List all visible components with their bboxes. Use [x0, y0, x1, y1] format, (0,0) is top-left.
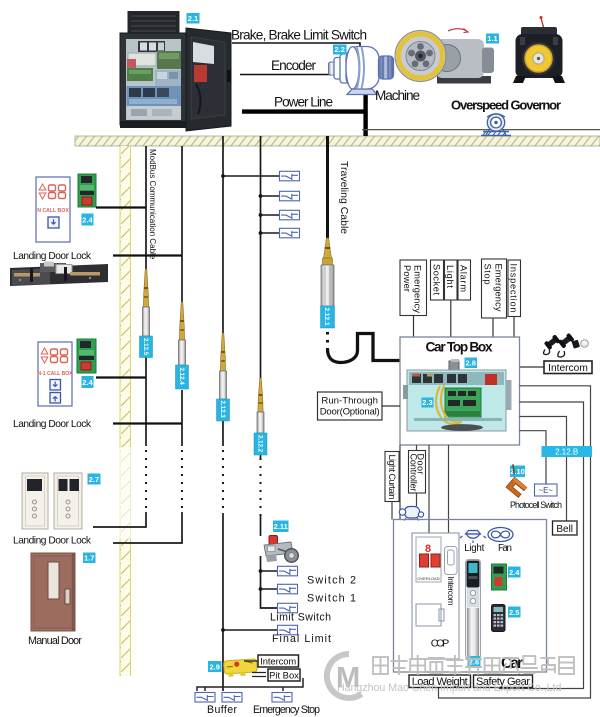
svg-text:2.12.2: 2.12.2 [256, 435, 263, 453]
svg-text:Door(Optional): Door(Optional) [320, 407, 380, 418]
svg-text:2.4: 2.4 [82, 378, 93, 387]
svg-text:Switch 1: Switch 1 [307, 593, 356, 605]
svg-text:2.5: 2.5 [509, 608, 519, 617]
svg-text:Power Line: Power Line [274, 95, 333, 110]
svg-text:Light: Light [445, 265, 455, 288]
svg-text:2.4: 2.4 [509, 568, 520, 577]
svg-text:Traveling Cable: Traveling Cable [338, 161, 350, 234]
svg-text:Manual Door: Manual Door [28, 635, 82, 647]
svg-text:Emergency Stop: Emergency Stop [253, 704, 320, 716]
svg-text:Car Top Box: Car Top Box [426, 340, 493, 355]
svg-text:2.2: 2.2 [334, 45, 344, 54]
svg-text:2.12.5: 2.12.5 [142, 338, 149, 356]
svg-text:2.11: 2.11 [274, 522, 288, 531]
svg-text:Socket: Socket [432, 264, 442, 295]
svg-text:Hangzhou Mao Chen Import and E: Hangzhou Mao Chen Import and Export Co.,… [337, 682, 561, 694]
svg-text:Buffer: Buffer [207, 704, 237, 716]
svg-text:Limit Switch: Limit Switch [270, 612, 331, 624]
svg-text:OVERLOAD: OVERLOAD [417, 576, 439, 581]
svg-text:2.12.B: 2.12.B [555, 448, 578, 457]
svg-text:Final Limit: Final Limit [272, 633, 331, 645]
svg-text:N CALL BOX: N CALL BOX [37, 208, 69, 214]
svg-text:Landing Door Lock: Landing Door Lock [13, 419, 92, 430]
svg-text:COP: COP [431, 638, 450, 650]
svg-text:Bell: Bell [556, 524, 573, 535]
svg-text:Encoder: Encoder [271, 58, 316, 73]
svg-text:Light Curtain: Light Curtain [387, 455, 397, 500]
svg-text:Machine: Machine [375, 88, 420, 103]
svg-text:Overspeed Governor: Overspeed Governor [451, 98, 561, 113]
svg-text:Photocell Switch: Photocell Switch [510, 500, 562, 510]
svg-text:Run-Through: Run-Through [321, 396, 378, 407]
svg-text:2.7: 2.7 [89, 475, 99, 484]
svg-text:Controller: Controller [409, 454, 419, 492]
svg-text:2.4: 2.4 [82, 216, 93, 225]
svg-text:2.9: 2.9 [209, 663, 219, 672]
svg-text:1.7: 1.7 [84, 554, 94, 563]
svg-text:Intercom: Intercom [260, 656, 296, 667]
svg-text:2.8: 2.8 [465, 359, 475, 368]
svg-text:N-1 CALL BOX: N-1 CALL BOX [38, 371, 74, 377]
svg-text:Landing Door Lock: Landing Door Lock [13, 251, 92, 262]
svg-text:2.12.3: 2.12.3 [219, 401, 226, 419]
svg-text:2.12.4: 2.12.4 [178, 368, 185, 386]
svg-text:Pit Box: Pit Box [269, 670, 299, 681]
svg-text:Brake, Brake Limit Switch: Brake, Brake Limit Switch [231, 28, 367, 43]
svg-text:ModBus Communication Cable: ModBus Communication Cable [148, 149, 157, 260]
svg-text:Stop: Stop [482, 264, 492, 285]
svg-text:Emergency: Emergency [493, 264, 503, 312]
svg-text:~E~: ~E~ [539, 486, 554, 495]
svg-text:8: 8 [425, 543, 431, 555]
svg-text:2.3: 2.3 [422, 398, 432, 407]
svg-text:Intercom: Intercom [446, 577, 456, 606]
svg-text:Intercom: Intercom [548, 363, 588, 374]
svg-text:2.1: 2.1 [188, 14, 198, 23]
svg-text:Landing Door Lock: Landing Door Lock [13, 536, 92, 547]
svg-text:Light: Light [464, 543, 484, 554]
svg-text:1.1: 1.1 [487, 34, 497, 43]
svg-text:2.10: 2.10 [510, 467, 525, 476]
svg-text:Power: Power [402, 265, 412, 292]
svg-text:2.12.1: 2.12.1 [323, 308, 330, 326]
svg-text:Inspection: Inspection [509, 264, 519, 313]
svg-text:Fan: Fan [498, 543, 512, 554]
svg-text:Switch 2: Switch 2 [307, 575, 356, 587]
svg-text:Emergency: Emergency [412, 265, 422, 313]
svg-text:Alarm: Alarm [459, 265, 469, 292]
